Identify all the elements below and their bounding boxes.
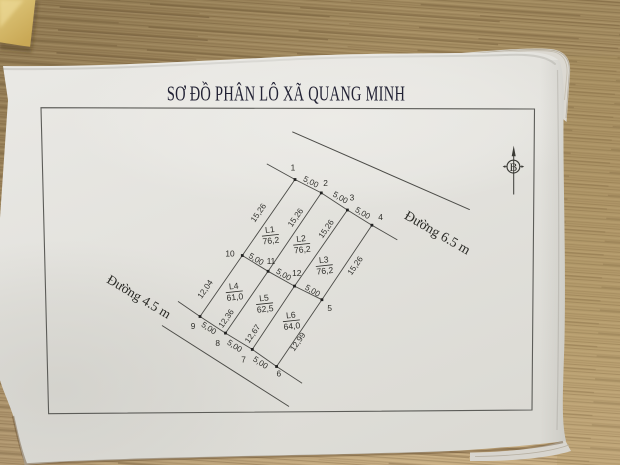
svg-text:62,5: 62,5 [256,303,274,315]
svg-text:L1: L1 [264,224,275,235]
svg-text:7: 7 [241,355,246,365]
svg-text:L6: L6 [285,310,296,321]
svg-text:2: 2 [323,178,328,188]
svg-text:B: B [509,160,517,174]
svg-text:76,2: 76,2 [293,244,311,256]
svg-text:9: 9 [191,321,196,331]
svg-text:76,2: 76,2 [262,235,280,247]
svg-text:11: 11 [267,256,276,266]
svg-text:SƠ ĐỒ PHÂN LÔ XÃ QUANG MINH: SƠ ĐỒ PHÂN LÔ XÃ QUANG MINH [167,81,405,106]
svg-text:12: 12 [292,268,302,278]
svg-text:6: 6 [276,369,281,379]
svg-text:64,0: 64,0 [283,320,301,332]
svg-text:76,2: 76,2 [316,265,334,277]
svg-text:L5: L5 [259,292,270,303]
svg-text:L2: L2 [296,233,307,244]
svg-text:3: 3 [350,193,355,203]
svg-text:4: 4 [378,212,383,222]
svg-text:L3: L3 [318,254,329,265]
svg-text:1: 1 [291,162,296,172]
svg-text:10: 10 [225,249,235,259]
svg-text:61,0: 61,0 [226,291,244,303]
svg-text:L4: L4 [228,281,239,292]
svg-text:8: 8 [215,338,220,348]
svg-text:5: 5 [327,303,332,313]
